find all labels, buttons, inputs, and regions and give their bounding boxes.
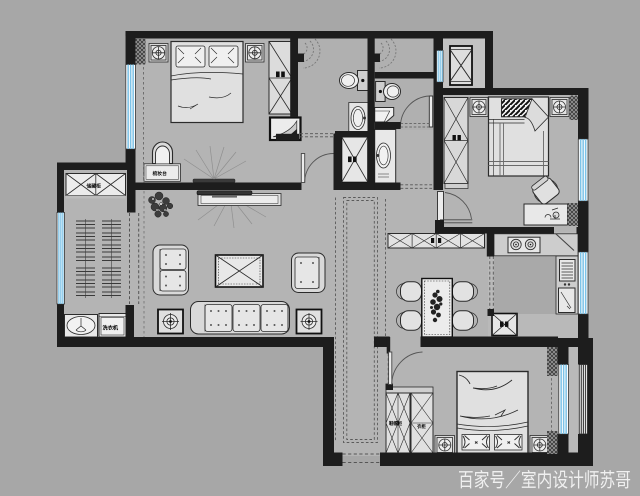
- svg-text:洗衣机: 洗衣机: [103, 324, 119, 332]
- svg-text:梳妆台: 梳妆台: [152, 170, 168, 177]
- svg-text:鞋帽柜: 鞋帽柜: [389, 420, 403, 427]
- svg-text:衣柜: 衣柜: [417, 423, 426, 430]
- svg-text:储藏柜: 储藏柜: [86, 183, 102, 190]
- svg-text:百家号／室内设计师苏哥: 百家号／室内设计师苏哥: [458, 470, 631, 492]
